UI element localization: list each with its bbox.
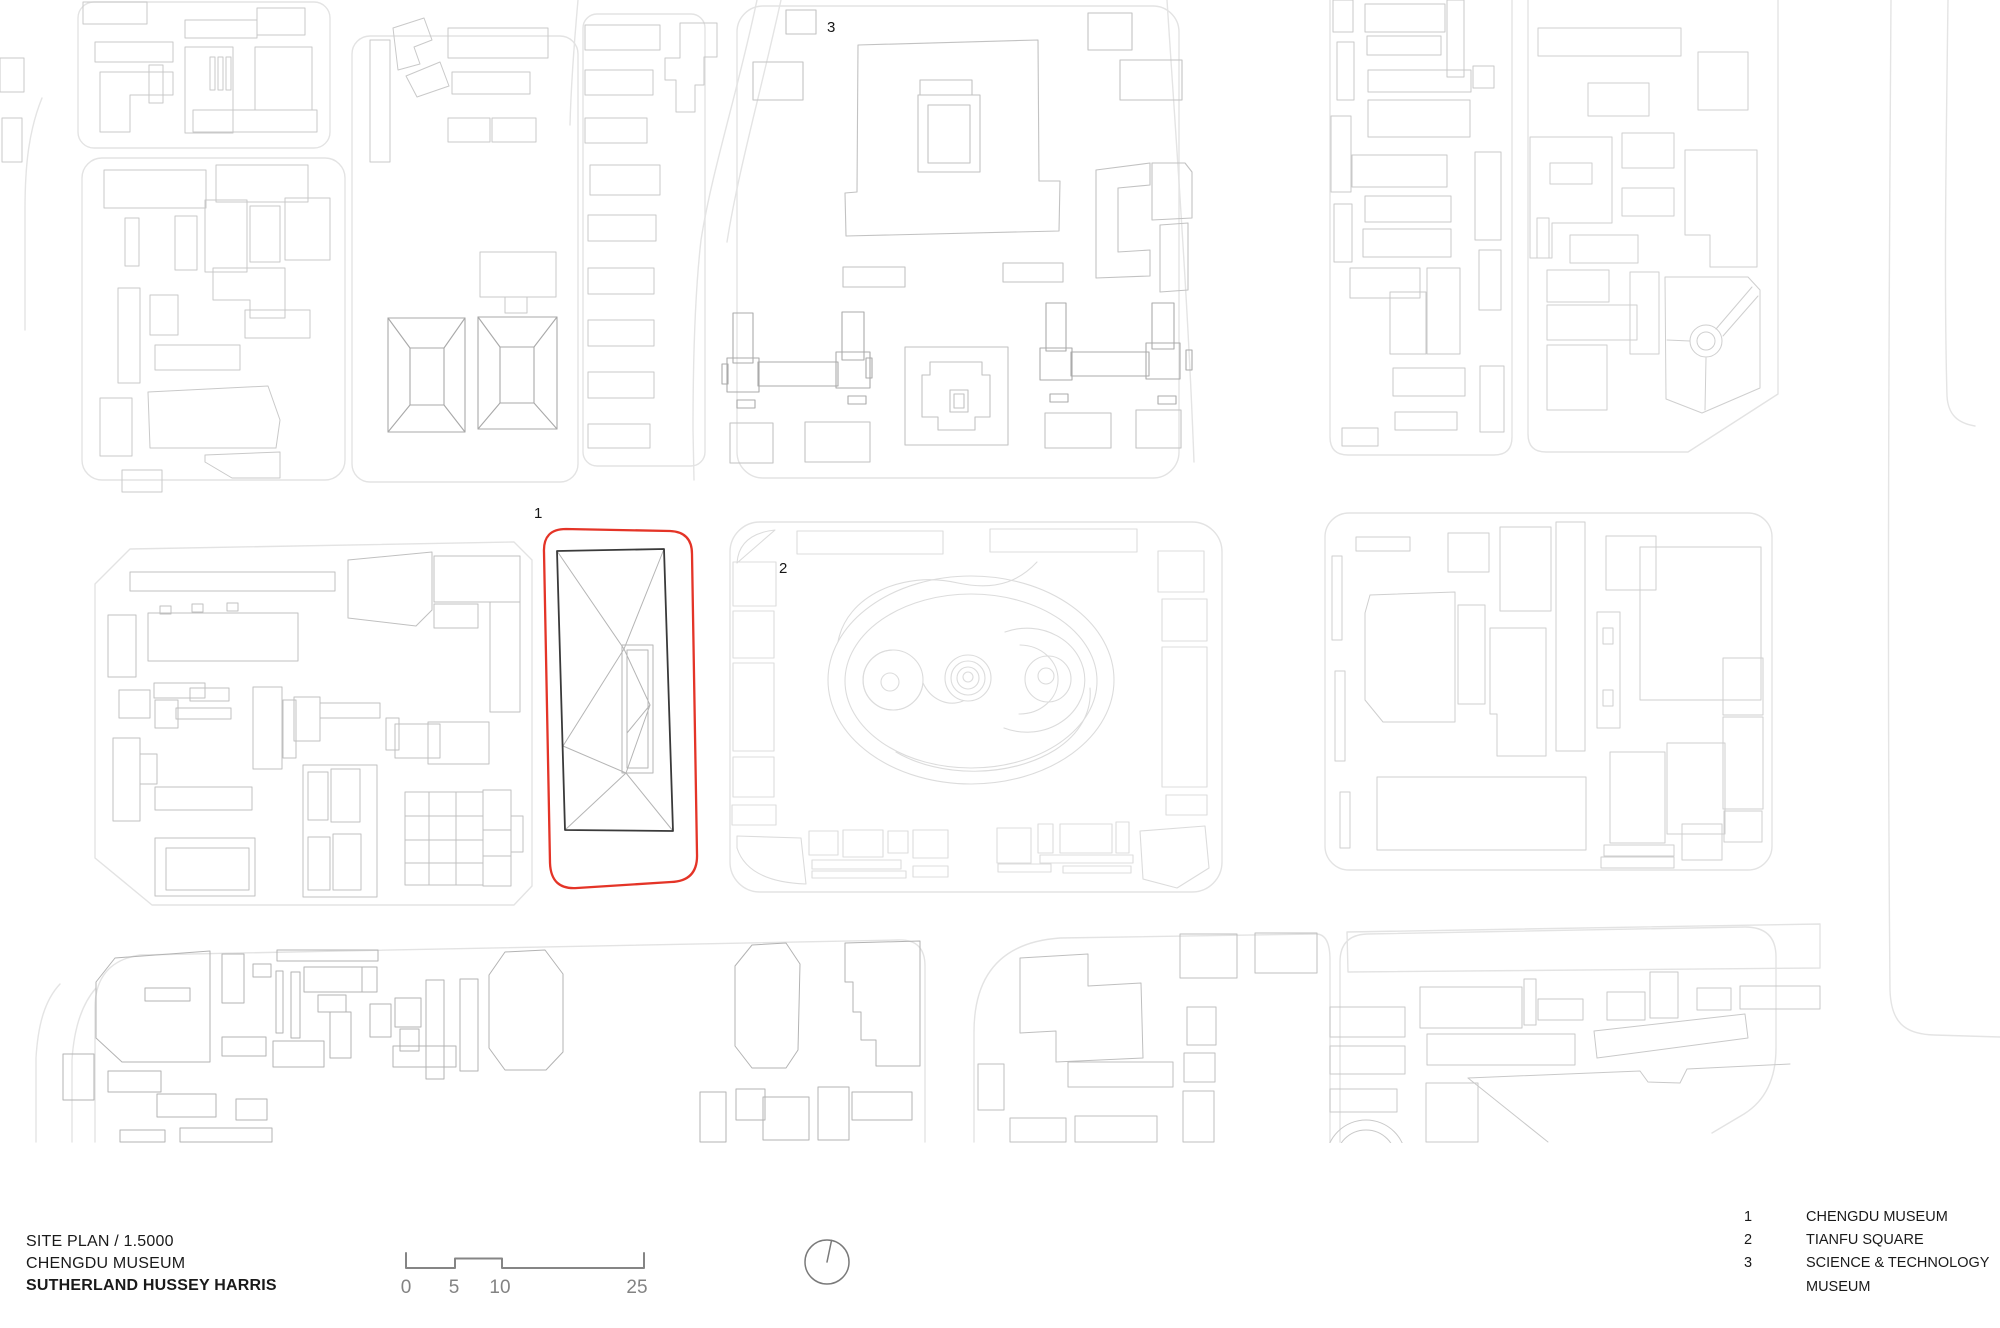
hip-roof-buildings <box>388 317 557 432</box>
science-museum-buildings <box>730 10 1192 463</box>
scale-bar-graphic <box>406 1253 644 1268</box>
drawing-sheet: 1 2 3 SITE PLAN / 1.5000 CHENGDU MUSEUM … <box>0 0 2000 1328</box>
map-label-science-museum: 3 <box>827 20 835 35</box>
map-label-tianfu-square: 2 <box>779 561 787 576</box>
legend-num-1: 1 <box>1744 1206 1806 1229</box>
legend-label-3-cont: MUSEUM <box>1806 1276 1870 1299</box>
buildings-topleft <box>0 2 330 492</box>
legend-row-3-cont: MUSEUM <box>1744 1276 1989 1299</box>
drawing-title: SITE PLAN / 1.5000 <box>26 1231 277 1253</box>
tianfu-square <box>732 529 1209 888</box>
street-lines <box>25 0 2000 1142</box>
legend-label-3: SCIENCE & TECHNOLOGY <box>1806 1252 1989 1275</box>
buildings-blockd <box>1331 0 1504 446</box>
buildings-bottommid <box>978 933 1317 1142</box>
site-boundary-red <box>544 529 697 888</box>
legend-row-1: 1 CHENGDU MUSEUM <box>1744 1206 1989 1229</box>
legend-label-1: CHENGDU MUSEUM <box>1806 1206 1948 1229</box>
buildings-bottomright <box>1326 972 1820 1200</box>
scale-label-10: 10 <box>489 1278 510 1297</box>
buildings-rightmid <box>1332 522 1763 868</box>
legend: 1 CHENGDU MUSEUM 2 TIANFU SQUARE 3 SCIEN… <box>1744 1206 1989 1299</box>
north-arrow <box>805 1240 849 1284</box>
buildings-blocke <box>1530 28 1760 413</box>
buildings-leftmid <box>108 552 523 897</box>
legend-row-2: 2 TIANFU SQUARE <box>1744 1229 1989 1252</box>
scale-label-0: 0 <box>401 1278 412 1297</box>
legend-label-2: TIANFU SQUARE <box>1806 1229 1924 1252</box>
scale-label-25: 25 <box>626 1278 647 1297</box>
museum-building <box>557 549 673 831</box>
architect-name: SUTHERLAND HUSSEY HARRIS <box>26 1275 277 1297</box>
site-plan-map <box>0 0 2000 1328</box>
map-drawing-area <box>0 0 2000 1200</box>
museum-roof <box>557 549 673 831</box>
legend-num-blank <box>1744 1276 1806 1299</box>
scale-label-5: 5 <box>449 1278 460 1297</box>
buildings-blockc <box>370 18 717 448</box>
project-name: CHENGDU MUSEUM <box>26 1253 277 1275</box>
map-label-chengdu-museum: 1 <box>534 506 542 521</box>
legend-num-2: 2 <box>1744 1229 1806 1252</box>
block-outlines <box>78 0 1820 1142</box>
legend-row-3: 3 SCIENCE & TECHNOLOGY <box>1744 1252 1989 1275</box>
dumbbell-buildings <box>722 303 1192 408</box>
title-block: SITE PLAN / 1.5000 CHENGDU MUSEUM SUTHER… <box>26 1231 277 1297</box>
buildings-bottomleft <box>63 941 920 1142</box>
legend-num-3: 3 <box>1744 1252 1806 1275</box>
